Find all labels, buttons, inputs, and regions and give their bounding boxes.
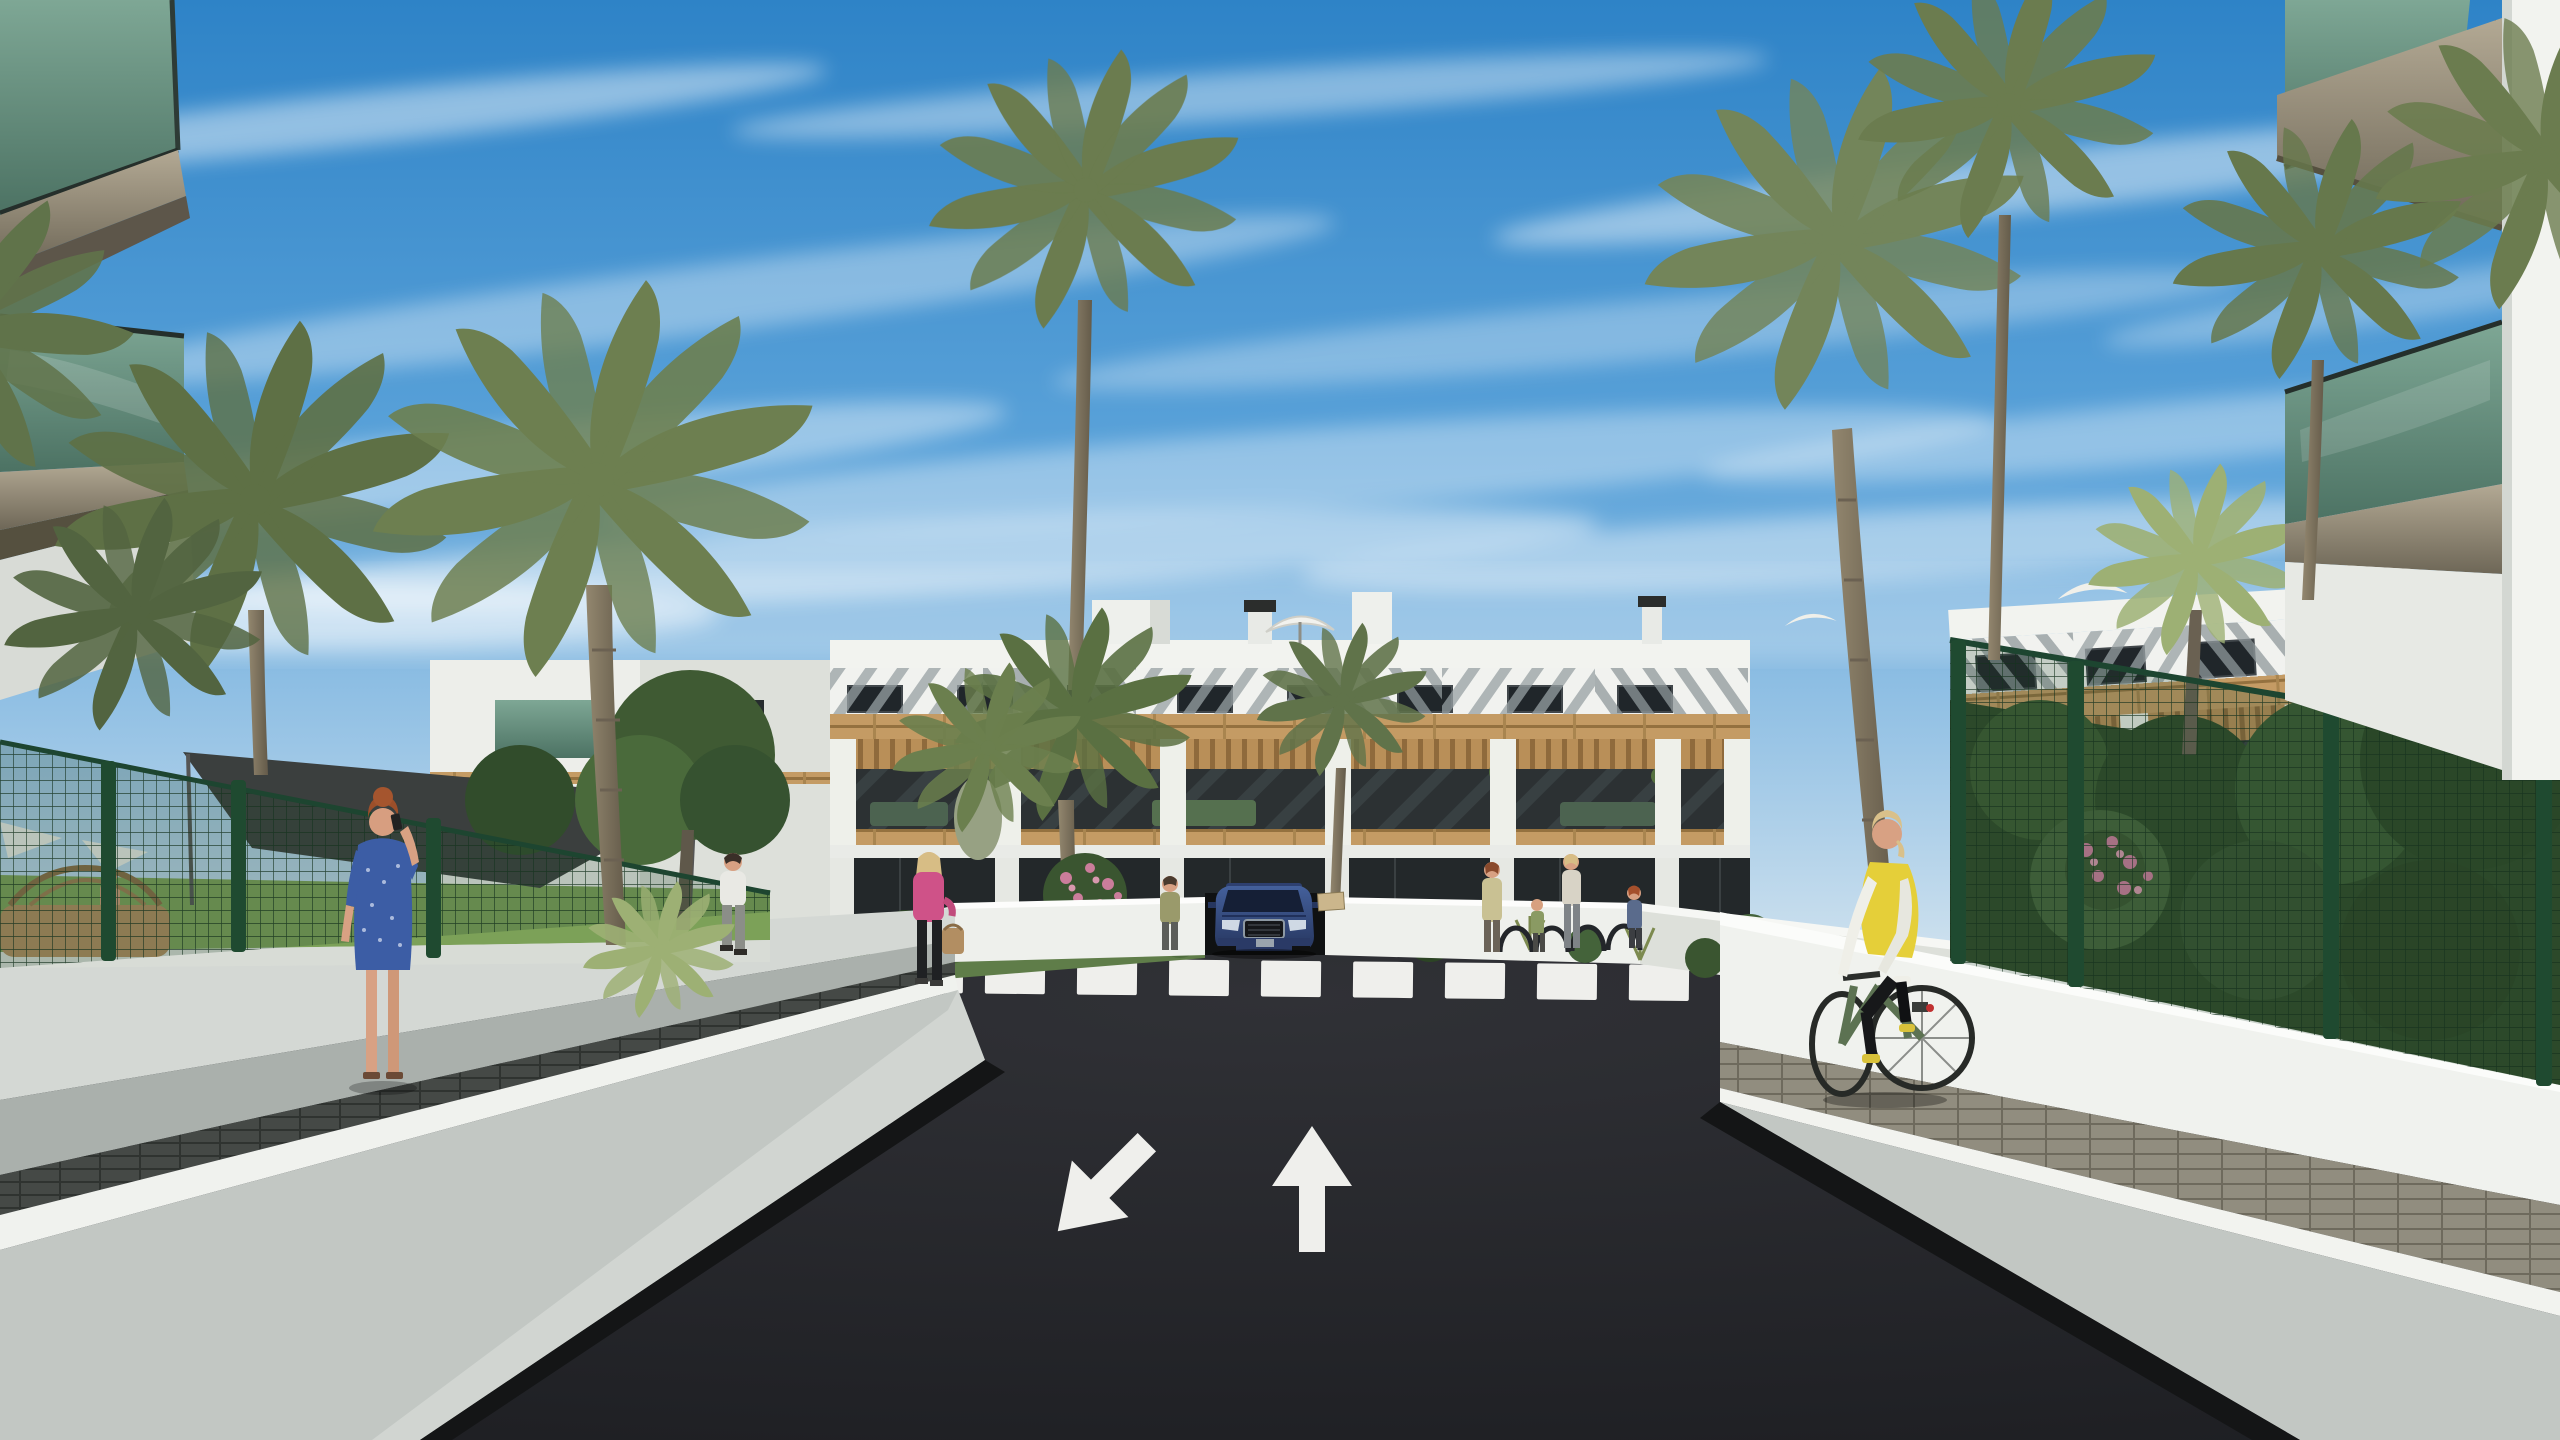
suv-car [1208, 883, 1320, 959]
scene [0, 0, 2560, 1440]
entrance-sign [1317, 892, 1344, 911]
handbag [942, 928, 964, 954]
render-canvas [0, 0, 2560, 1440]
chimney [1642, 602, 1662, 644]
